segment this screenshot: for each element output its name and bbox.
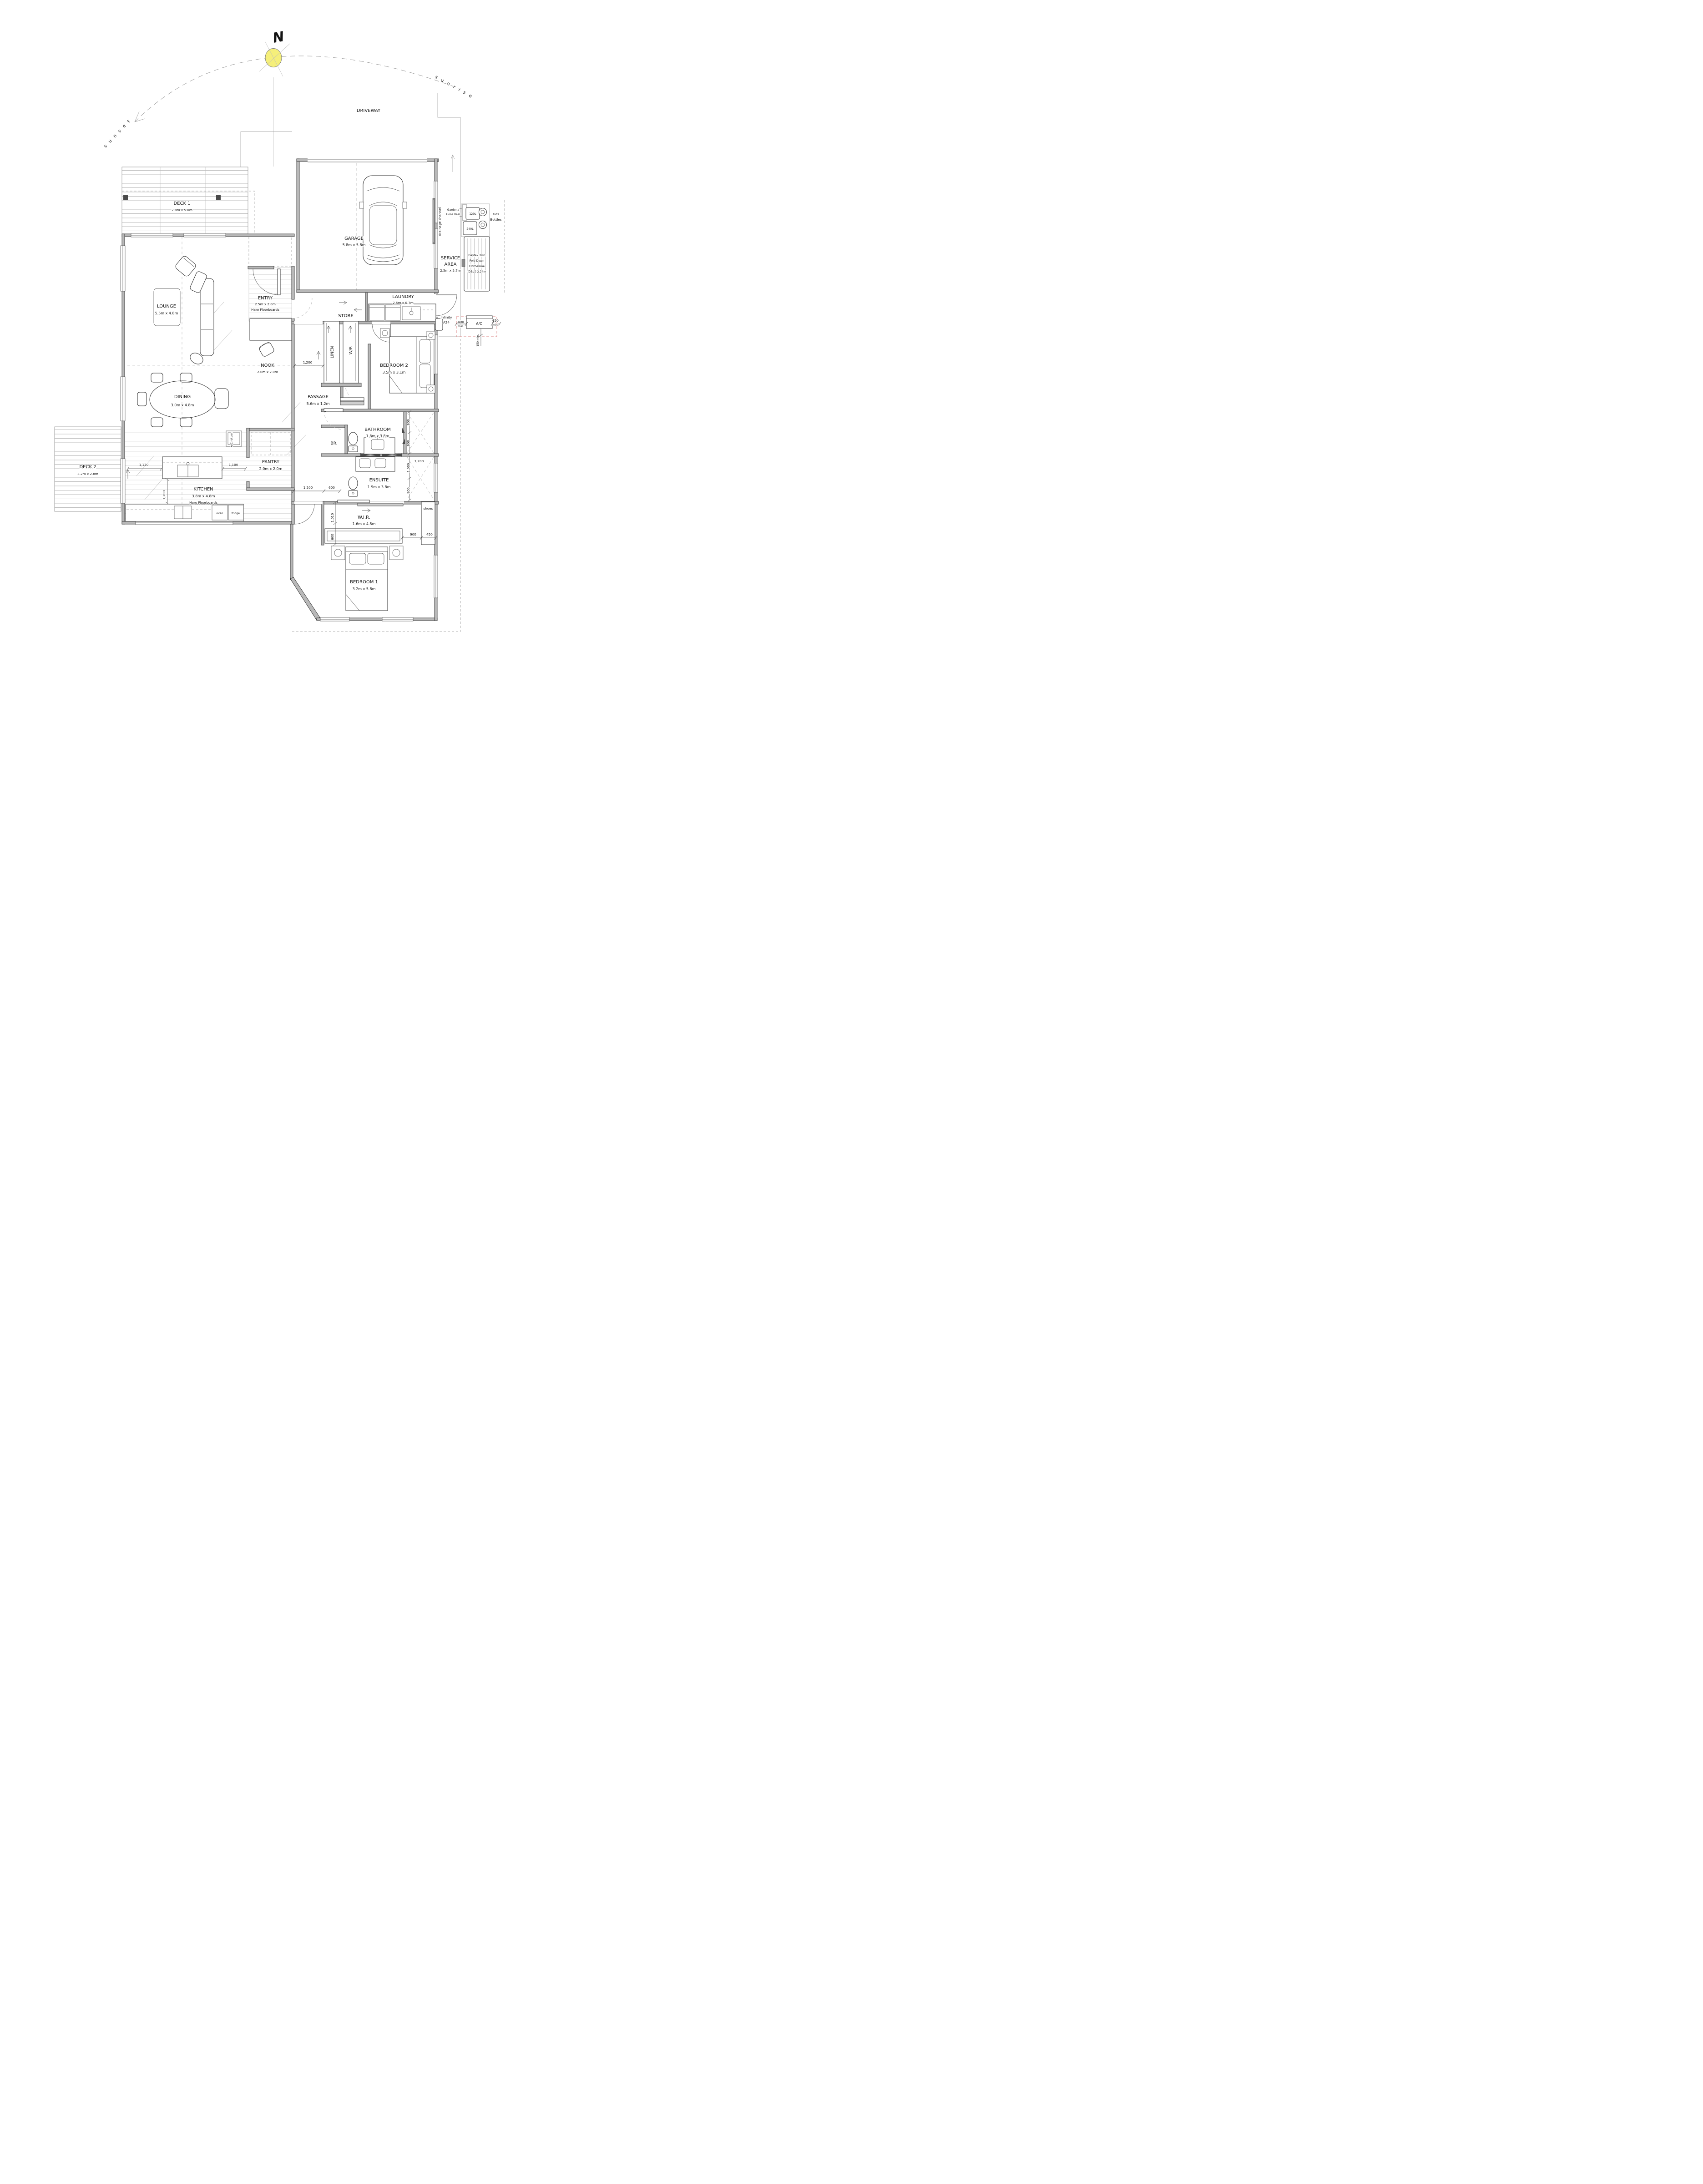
dim-nook-1200: 1,200	[303, 360, 313, 364]
passage-dims: 5.6m x 1.2m	[307, 402, 330, 406]
dining-chair	[137, 392, 147, 406]
dim-wir-450: 450	[426, 532, 433, 536]
pocket-door-panel	[340, 401, 364, 405]
shoes-label: shoes	[424, 506, 433, 511]
ac-150min-vertical: 150 min.	[476, 334, 480, 346]
car-mirror	[359, 202, 364, 208]
dining-table	[150, 381, 215, 418]
deck-post	[123, 195, 128, 200]
dim-ensuite-900: 900	[406, 487, 410, 494]
pillow	[419, 339, 430, 363]
shower-ensuite	[407, 457, 434, 499]
entry-floor-note: Haro Floorboards	[251, 308, 279, 312]
washer	[369, 305, 384, 320]
wir-label: W.I.R.	[358, 515, 370, 520]
dim-bath-900a: 900	[406, 419, 410, 425]
laundry-label: LAUNDRY	[392, 294, 414, 299]
car-mirror	[403, 202, 407, 208]
deck-post	[216, 195, 221, 200]
bin240-label: 240L	[466, 227, 474, 231]
dim-wir-1010: 1,010	[330, 513, 334, 522]
entry-passage-door-swing	[292, 298, 312, 318]
desk-chair	[258, 342, 275, 358]
nook-dims: 2.0m x 2.0m	[257, 370, 278, 374]
kitchen-label: KITCHEN	[193, 487, 213, 492]
garage-label: GARAGE	[344, 236, 364, 241]
shower-bathroom	[407, 413, 434, 453]
dim-bath-900b: 900	[406, 440, 410, 446]
deck1-label: DECK 1	[173, 201, 190, 206]
pillow	[419, 364, 430, 388]
dryer	[385, 305, 400, 320]
passage-label: PASSAGE	[308, 394, 328, 399]
dim-kitchen-1100: 1,100	[229, 463, 238, 467]
clothesline	[464, 237, 490, 291]
sunset-label: s u n s e t	[103, 118, 132, 149]
wr-label: W/R	[349, 346, 354, 354]
dining-label: DINING	[174, 394, 191, 399]
sunrise-label: s u n r i s e	[434, 75, 474, 100]
desk	[250, 318, 292, 340]
clothesline-label1: Daytek Twin	[468, 254, 485, 257]
ac-400: 400	[458, 320, 464, 324]
infinity-heater	[435, 318, 443, 330]
gas-bottle	[479, 208, 487, 216]
porch-outline	[249, 235, 292, 266]
bed1-door-swing	[294, 504, 314, 524]
bed2-door-gap	[372, 321, 390, 324]
dim-ensuite-1000: 1,000	[406, 463, 410, 472]
clothesline-label3: Clothesline	[469, 265, 485, 268]
north-arrow-icon: N	[272, 29, 286, 46]
service-area-dims: 2.5m x 5.7m	[440, 268, 461, 273]
clothesline-bracket	[462, 259, 465, 267]
dim-wir-600: 600	[330, 534, 334, 540]
deck2-dims: 3.2m x 2.8m	[77, 472, 98, 476]
compass: N s u n s e t s u n r i s e	[103, 29, 474, 167]
dim-hall-1200: 1,200	[303, 485, 313, 490]
ac-150-min: min.	[492, 324, 499, 327]
dim-kitchen-1200: 1,200	[162, 490, 166, 500]
entry-door-leaf	[278, 269, 280, 295]
sofa	[200, 278, 214, 356]
garage-dims: 5.8m x 5.8m	[343, 243, 366, 247]
dim-kitchen-1120: 1,120	[139, 463, 149, 467]
ensuite-label: ENSUITE	[369, 478, 389, 483]
drainage-label: drainage channel	[438, 207, 442, 236]
dim-wir-900: 900	[410, 532, 416, 536]
wir-slider-track	[338, 500, 369, 503]
clothesline-label4: (DBL.) 2.24m	[467, 270, 486, 273]
bin120-label: 120L	[469, 212, 476, 216]
pillow	[349, 553, 366, 564]
wir-slider-panel	[358, 503, 403, 506]
hall-opening	[294, 501, 323, 504]
driveway-label: DRIVEWAY	[357, 108, 381, 113]
bathroom-fixtures	[349, 413, 434, 454]
nightstand	[389, 546, 403, 560]
bathroom-label: BATHROOM	[364, 427, 391, 432]
dining-dims: 3.0m x 4.8m	[171, 403, 194, 407]
deck2-label: DECK 2	[79, 465, 96, 470]
dining-chair	[180, 418, 192, 427]
basin	[359, 459, 370, 468]
bedroom1-label: BEDROOM 1	[350, 580, 378, 585]
meter-box	[427, 385, 435, 393]
kitchen-floor-note: Haro Floorboards	[189, 500, 217, 505]
fridge-label: fridge	[232, 512, 240, 515]
pocket-door-track	[340, 398, 364, 401]
floor-plan-sheet: N s u n s e t s u n r i s e DRIVEWAY	[0, 0, 556, 713]
linen-label: LINEN	[330, 346, 335, 359]
bedroom2-dims: 3.5m x 3.1m	[383, 370, 406, 374]
br-label: BR.	[331, 441, 338, 446]
entry-floorboards	[249, 268, 292, 321]
nightstand	[380, 329, 389, 338]
lounge-dims: 5.5m x 4.8m	[155, 311, 178, 315]
wir-fixtures	[325, 502, 435, 545]
ensuite-dims: 1.9m x 3.8m	[368, 485, 391, 489]
deck1-dims: 2.8m x 5.0m	[172, 208, 192, 212]
entry-label: ENTRY	[258, 296, 273, 301]
gas-label1: Gas	[493, 212, 499, 216]
dining-set	[137, 373, 228, 427]
pillow	[368, 553, 384, 564]
dim-ensuite-600: 600	[328, 485, 335, 490]
service-area-label2: AREA	[445, 262, 457, 267]
meter-box	[427, 331, 435, 339]
dim-shower-1200: 1,200	[414, 459, 424, 463]
pantry-label: PANTRY	[262, 460, 280, 465]
basin	[375, 459, 386, 468]
infinity-label1: Infinity	[441, 315, 453, 319]
store-arrows	[339, 301, 362, 312]
passage-opening	[294, 321, 323, 324]
service-area-label1: SERVICE	[441, 256, 460, 261]
sun-path-arc	[135, 56, 461, 122]
gas-bottle	[479, 221, 487, 229]
gas-label2: Bottles	[490, 217, 501, 222]
bathroom-dims: 1.8m x 3.8m	[366, 434, 389, 438]
gardena-label2: Hose Reel	[446, 213, 460, 216]
ac-label: A/C	[476, 322, 482, 326]
kitchen-dims: 3.8m x 4.8m	[192, 494, 215, 498]
wir-dims: 1.6m x 4.5m	[353, 522, 376, 526]
ac-return-label: A/C return	[230, 433, 233, 447]
nook-desk	[250, 318, 292, 357]
bedroom2-label: BEDROOM 2	[380, 363, 408, 368]
service-door-swing	[436, 295, 457, 316]
clothesline-label2: Fold Down	[470, 259, 484, 263]
store-label: STORE	[338, 313, 354, 318]
dining-armchair	[215, 389, 228, 409]
basin	[371, 440, 384, 450]
lounge-furniture	[154, 255, 214, 366]
bedroom1-furniture	[331, 546, 403, 611]
dining-chair	[151, 418, 163, 427]
bedroom1-dims: 3.2m x 5.8m	[353, 587, 376, 591]
nightstand	[331, 546, 345, 560]
ac-150: 150	[492, 318, 499, 323]
nook-label: NOOK	[261, 363, 274, 368]
laundry-dims: 2.5m x 0.7m	[393, 301, 414, 305]
gardena-label1: Gardena	[447, 208, 460, 212]
room-labels: DECK 1 2.8m x 5.0m DECK 2 3.2m x 2.8m GA…	[77, 201, 461, 591]
ac-return-duct	[226, 431, 242, 446]
entry-dims: 2.5m x 2.0m	[255, 302, 276, 306]
headboard	[346, 547, 388, 551]
infinity-label2: A24	[443, 320, 450, 324]
pantry-dims: 2.0m x 2.0m	[259, 467, 283, 471]
ac-400-min: min.	[458, 325, 464, 328]
dining-chair	[151, 373, 163, 382]
lounge-label: LOUNGE	[157, 304, 176, 309]
bedroom2-furniture	[380, 329, 434, 393]
oven-label: oven	[216, 512, 223, 515]
toilet	[349, 477, 358, 490]
bathroom-door-leaf	[324, 409, 343, 411]
deck-1	[122, 167, 255, 234]
toilet	[349, 432, 358, 445]
garage-car	[359, 176, 407, 265]
laundry-bench	[369, 304, 436, 321]
